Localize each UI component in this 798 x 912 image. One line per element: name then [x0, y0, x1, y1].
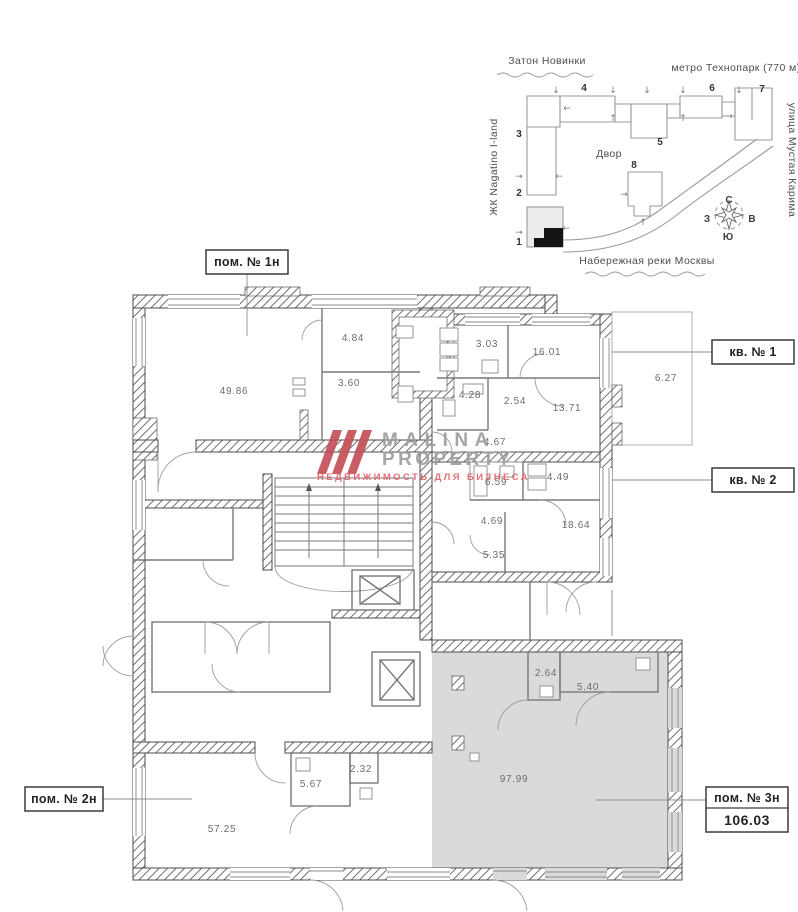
site-label-courtyard: Двор [596, 148, 622, 160]
window [387, 868, 450, 880]
room-area-label: 2.64 [535, 668, 557, 679]
window [668, 688, 682, 728]
brand-stripes-icon [317, 430, 372, 474]
svg-text:→: → [515, 172, 523, 182]
floorplan-page: Затон Новинки метро Технопарк (770 м) ЖК… [0, 0, 798, 912]
wavy-line-top [497, 73, 593, 77]
compass-rose-icon: С В З Ю [704, 195, 756, 243]
room-area-label: 3.60 [338, 378, 360, 389]
window [230, 868, 290, 880]
callout-apt2-label: кв. № 2 [729, 473, 776, 487]
window [668, 812, 682, 852]
room-area-label: 49.86 [220, 386, 249, 397]
room-area-label: 5.35 [483, 550, 505, 561]
svg-text:↓: ↓ [735, 86, 743, 96]
window [133, 480, 145, 530]
site-label-right-street: улица Мустая Карима [786, 103, 798, 217]
window [622, 868, 660, 880]
room-area-label: 3.03 [476, 339, 498, 350]
floorplan-drawing: Затон Новинки метро Технопарк (770 м) ЖК… [0, 0, 798, 912]
window [133, 768, 145, 836]
room-area-label: 18.64 [562, 520, 591, 531]
svg-text:↓: ↓ [552, 86, 560, 96]
site-label-metro: метро Технопарк (770 м) [671, 62, 798, 74]
callout-apt1-label: кв. № 1 [729, 345, 776, 359]
window [600, 338, 612, 388]
room-area-label: 4.84 [342, 333, 364, 344]
svg-text:1: 1 [516, 237, 522, 248]
site-plan: Затон Новинки метро Технопарк (770 м) ЖК… [488, 55, 798, 276]
stairs [275, 478, 413, 592]
window [600, 468, 612, 518]
window [133, 318, 145, 366]
room-area-label: 2.32 [350, 764, 372, 775]
elevator-icon [372, 652, 420, 706]
svg-text:8: 8 [631, 160, 637, 171]
svg-text:4: 4 [581, 83, 587, 94]
svg-text:З: З [704, 214, 710, 225]
window [668, 748, 682, 792]
room-area-label: 13.71 [553, 403, 582, 414]
window [532, 314, 590, 325]
room-area-label: 2.54 [504, 396, 526, 407]
svg-text:↓: ↓ [609, 86, 617, 96]
watermark-brand-line2: PROPERTY [382, 449, 514, 470]
svg-text:↑: ↑ [609, 114, 617, 124]
site-label-zaton: Затон Новинки [508, 55, 586, 67]
window [545, 868, 607, 880]
svg-text:С: С [725, 195, 732, 206]
svg-text:↑: ↑ [679, 114, 687, 124]
site-label-left-street: ЖК Nagatino I-land [488, 118, 500, 215]
svg-text:↓: ↓ [679, 86, 687, 96]
svg-text:Ю: Ю [723, 232, 733, 243]
site-label-embankment: Набережная реки Москвы [579, 255, 715, 267]
room-area-label: 4.49 [547, 472, 569, 483]
svg-text:←: ← [555, 172, 563, 182]
unit-3n-highlight [432, 650, 668, 870]
callout-unit1-label: пом. № 1н [214, 255, 280, 269]
unit-1n-door [158, 320, 322, 492]
svg-text:←: ← [563, 104, 571, 114]
room-area-label: 16.01 [533, 347, 562, 358]
window [465, 314, 520, 325]
room-area-label: 6.27 [655, 373, 677, 384]
callout-unit2-label: пом. № 2н [31, 792, 97, 806]
svg-text:2: 2 [516, 188, 522, 199]
room-area-label: 5.67 [300, 779, 322, 790]
window [168, 295, 240, 308]
window [312, 295, 417, 308]
svg-text:↑: ↑ [639, 218, 647, 228]
floor-plan: 49.86 4.84 3.60 3.03 16.01 6.27 2.54 13.… [103, 287, 692, 911]
svg-text:7: 7 [759, 84, 765, 95]
svg-text:6: 6 [709, 83, 715, 94]
svg-text:5: 5 [657, 137, 663, 148]
entry-alcove [530, 582, 612, 640]
callout-unit3-area: 106.03 [724, 812, 770, 828]
callout-unit3-label: пом. № 3н [714, 791, 780, 805]
svg-text:→: → [515, 228, 523, 238]
watermark-tagline: НЕДВИЖИМОСТЬ ДЛЯ БИЗНЕСА [317, 472, 530, 483]
svg-text:В: В [748, 214, 755, 225]
room-area-label: 97.99 [500, 774, 529, 785]
wavy-line-bottom [585, 272, 705, 276]
window [600, 538, 612, 576]
room-area-label: 4.69 [481, 516, 503, 527]
room-area-label: 57.25 [208, 824, 237, 835]
svg-text:→: → [620, 190, 628, 200]
svg-text:3: 3 [516, 129, 522, 140]
room-area-label: 4.28 [459, 390, 481, 401]
svg-text:↓: ↓ [643, 86, 651, 96]
watermark-brand-line1: MALINA [382, 430, 495, 451]
site-building-1-highlight [527, 207, 563, 247]
elevator-icon [352, 570, 414, 610]
room-area-label: 5.40 [577, 682, 599, 693]
balcony [612, 312, 692, 445]
svg-text:→: → [725, 112, 733, 122]
svg-text:←: ← [562, 224, 570, 234]
